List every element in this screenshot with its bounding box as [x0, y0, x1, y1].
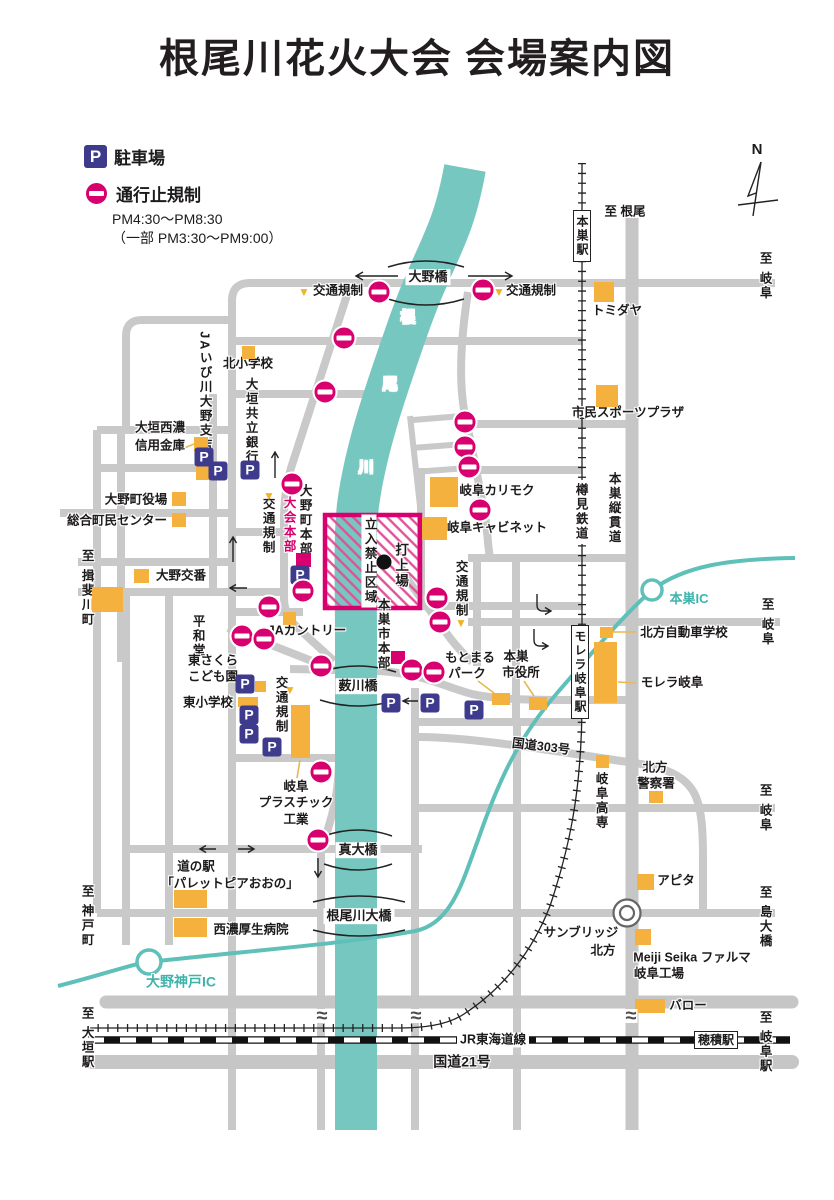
- label-to-gifu-low: 至 岐阜: [757, 784, 770, 833]
- label-sogo-chomin-center: 総合町民センター: [67, 514, 167, 527]
- label-ogaki-seino-2: 信用金庫: [135, 439, 185, 452]
- label-compass-n: N: [752, 142, 763, 158]
- label-shimin-sports-plaza: 市民スポーツプラザ: [572, 406, 684, 419]
- parking-icon-10: P: [465, 701, 484, 720]
- closure-times: PM4:30〜PM8:30 （一部 PM3:30〜PM9:00）: [112, 210, 282, 248]
- label-motosu-ic: 本巣IC: [669, 592, 708, 606]
- no-entry-icon-11: [428, 610, 453, 635]
- label-higashi-sakura-1: 東さくら: [188, 654, 238, 667]
- label-seino-kosei-hospital: 西濃厚生病院: [213, 923, 288, 936]
- label-valor: バロー: [669, 999, 707, 1012]
- no-entry-icon-18: [309, 760, 334, 785]
- label-route-303: 国道303号: [511, 737, 571, 757]
- parking-icon-9: P: [421, 694, 440, 713]
- legend: P 駐車場 通行止規制 PM4:30〜PM8:30 （一部 PM3:30〜PM9…: [84, 144, 282, 248]
- building-koban: [134, 569, 149, 583]
- label-gifu-plastic-1: 岐阜: [283, 780, 308, 793]
- building-seino-hospital: [174, 918, 207, 937]
- no-entry-icon-3: [313, 380, 338, 405]
- parking-icon-8: P: [382, 694, 401, 713]
- label-kotsu-kisei-3: 交通規制: [260, 497, 273, 555]
- building-michinoeki: [174, 890, 207, 908]
- no-entry-icon-19: [306, 828, 331, 853]
- label-sunbridge-1: サンブリッジ: [544, 926, 619, 939]
- label-higashi-elementary: 東小学校: [183, 696, 233, 709]
- no-entry-icon-9: [309, 654, 334, 679]
- label-launch-site: 打上場: [393, 543, 407, 590]
- label-motomaru-park-1: もとまる: [445, 651, 495, 664]
- no-entry-icon-17: [468, 498, 493, 523]
- bridge-label-yabukawa-bashi: 薮川橋: [335, 678, 380, 694]
- no-entry-icon-10: [425, 586, 450, 611]
- parking-icon-6: P: [240, 725, 259, 744]
- label-apita: アピタ: [657, 874, 695, 887]
- label-ono-koban: 大野交番: [156, 569, 206, 582]
- label-heiwado: 平和堂: [190, 614, 203, 658]
- bridge-label-ono-bashi: 大野橋: [405, 269, 450, 285]
- label-onocho-honbu: 大野町本部: [297, 484, 310, 557]
- label-route-21: 国道21号: [433, 1055, 491, 1070]
- label-gifu-karimoku: 岐阜カリモク: [459, 484, 534, 497]
- building-gifu-plastic: [291, 705, 310, 758]
- label-ja-country: JAカントリー: [268, 624, 346, 637]
- no-entry-icon-2: [332, 326, 357, 351]
- label-michinoeki-2: 「パレットピアおおの」: [161, 877, 299, 890]
- label-motosu-shi-honbu: 本巣市本部: [375, 598, 388, 671]
- label-to-neo: 至 根尾: [605, 205, 646, 218]
- label-to-ibigawacho: 至 揖斐川町: [79, 549, 92, 627]
- road-break-mark-0: ≈: [316, 1009, 329, 1023]
- station-motosu-station: 本巣駅: [573, 210, 591, 262]
- bridge-label-shindai-bashi: 真大橋: [335, 842, 380, 858]
- traffic-triangle-icon-3: ▼: [455, 617, 467, 629]
- label-onocho-yakuba: 大野町役場: [105, 493, 168, 506]
- parking-icon-7: P: [263, 738, 282, 757]
- building-yakuba: [172, 492, 186, 506]
- map-page: 根尾川花火大会 会場案内図: [0, 0, 834, 1200]
- road-break-mark-1: ≈: [410, 1009, 423, 1023]
- closure-time-partial: （一部 PM3:30〜PM9:00）: [112, 229, 282, 248]
- no-entry-icon: [84, 181, 109, 206]
- label-to-gifu-sta: 至 岐阜駅: [757, 1010, 770, 1073]
- label-motosu-shiyakusho-1: 本巣: [503, 650, 528, 663]
- label-kitagata-police-1: 北方: [642, 761, 667, 774]
- label-river-1: 根: [400, 310, 415, 326]
- building-malera: [594, 642, 617, 703]
- building-valor: [635, 999, 665, 1013]
- building-shinyokinko-2: [196, 466, 209, 480]
- bridge-label-neogawa-ohashi: 根尾川大橋: [323, 908, 394, 924]
- no-entry-icon-4: [280, 472, 305, 497]
- parking-icon-5: P: [240, 706, 259, 725]
- label-gifu-cabinet: 岐阜キャビネット: [447, 521, 547, 534]
- building-chomin-center: [172, 513, 186, 527]
- label-meiji-seika-2: 岐阜工場: [634, 967, 684, 980]
- label-gifu-plastic-2: プラスチック: [259, 796, 334, 809]
- building-shimin-sports: [596, 385, 618, 407]
- no-entry-icon-13: [422, 660, 447, 685]
- no-entry-icon-0: [367, 280, 392, 305]
- label-tarumi-railway: 樽見鉄道: [572, 480, 587, 544]
- building-tomidaya: [594, 282, 614, 302]
- building-karimoku: [430, 477, 458, 507]
- label-jr-tokaido-line: JR東海道線: [457, 1032, 529, 1047]
- no-entry-icon-14: [453, 410, 478, 435]
- station-malera-gifu-station: モレラ岐阜駅: [571, 625, 589, 719]
- traffic-triangle-icon-4: ▼: [284, 684, 296, 696]
- label-higashi-sakura-2: こども園: [188, 670, 238, 683]
- label-sunbridge-2: 北方: [590, 944, 615, 957]
- building-ja-country: [283, 612, 296, 625]
- label-kitagata-police-2: 警察署: [637, 777, 675, 790]
- label-to-shimaohashi: 至 島大橋: [757, 885, 770, 948]
- label-ogaki-kyoritsu-bank: 大垣共立銀行: [243, 378, 256, 465]
- label-kotsu-kisei-4: 交通規制: [453, 560, 466, 618]
- label-meiji-seika-1: Meiji Seika ファルマ: [633, 951, 750, 964]
- parking-legend-label: 駐車場: [114, 144, 165, 169]
- no-entry-icon-8: [252, 627, 277, 652]
- parking-icon: P: [84, 145, 107, 168]
- parking-icon-1: P: [209, 462, 228, 481]
- station-hozumi-station: 穂積駅: [694, 1031, 738, 1049]
- label-gifu-kosen: 岐阜高専: [593, 772, 606, 830]
- label-michinoeki-1: 道の駅: [177, 860, 215, 873]
- closure-legend-label: 通行止規制: [116, 181, 201, 206]
- label-to-gifu-top: 至 岐阜: [757, 252, 770, 301]
- closure-time-main: PM4:30〜PM8:30: [112, 210, 282, 229]
- traffic-triangle-icon-0: ▼: [298, 286, 310, 298]
- building-police: [649, 791, 663, 803]
- label-to-ogaki-sta: 至 大垣駅: [79, 1006, 92, 1069]
- label-taikai-honbu: 大会本部: [281, 496, 294, 554]
- label-river-2: 尾: [382, 377, 397, 393]
- label-tomidaya: トミダヤ: [592, 304, 642, 317]
- label-river-3: 川: [358, 460, 373, 476]
- label-kita-elementary: 北小学校: [223, 357, 273, 370]
- label-kotsu-kisei-1: 交通規制: [313, 284, 363, 297]
- building-kosen: [596, 755, 609, 768]
- label-ono-kobe-ic: 大野神戸IC: [146, 975, 216, 990]
- parking-icon-2: P: [241, 461, 260, 480]
- no-entry-icon-6: [257, 595, 282, 620]
- building-cabinet: [422, 517, 447, 540]
- building-apita: [637, 874, 654, 890]
- parking-icon-4: P: [236, 675, 255, 694]
- label-malera-gifu: モレラ岐阜: [641, 676, 704, 689]
- building-meiji-seika: [635, 929, 651, 945]
- building-motomaru: [492, 693, 510, 705]
- label-kotsu-kisei-2: 交通規制: [506, 284, 556, 297]
- label-to-kobecho: 至 神戸町: [79, 884, 92, 947]
- label-motosu-jukando: 本巣縦貫道: [606, 472, 619, 545]
- label-motomaru-park-2: パーク: [448, 667, 486, 680]
- building-sakura-kodomoen: [255, 681, 266, 692]
- traffic-triangle-icon-2: ▼: [263, 490, 275, 502]
- label-kitagata-driving-school: 北方自動車学校: [640, 626, 728, 639]
- building-shiyakusho: [529, 697, 547, 710]
- label-motosu-shiyakusho-2: 市役所: [502, 666, 540, 679]
- launch-site-dot: [377, 555, 392, 570]
- building-driving-school: [600, 627, 613, 638]
- no-entry-icon-1: [471, 278, 496, 303]
- label-ogaki-seino-1: 大垣西濃: [135, 421, 185, 434]
- label-gifu-plastic-3: 工業: [283, 813, 308, 826]
- building-kita-elementary: [242, 346, 255, 359]
- building-heiwado: [92, 587, 123, 612]
- no-entry-icon-5: [291, 579, 316, 604]
- label-ja-ibigawa: JAいび川大野支店: [197, 331, 210, 452]
- road-break-mark-2: ≈: [625, 1009, 638, 1023]
- label-to-gifu-mid: 至 岐阜: [759, 598, 772, 647]
- label-restricted-zone: 立入禁止区域: [361, 515, 376, 608]
- traffic-triangle-icon-1: ▼: [493, 286, 505, 298]
- no-entry-icon-16: [457, 455, 482, 480]
